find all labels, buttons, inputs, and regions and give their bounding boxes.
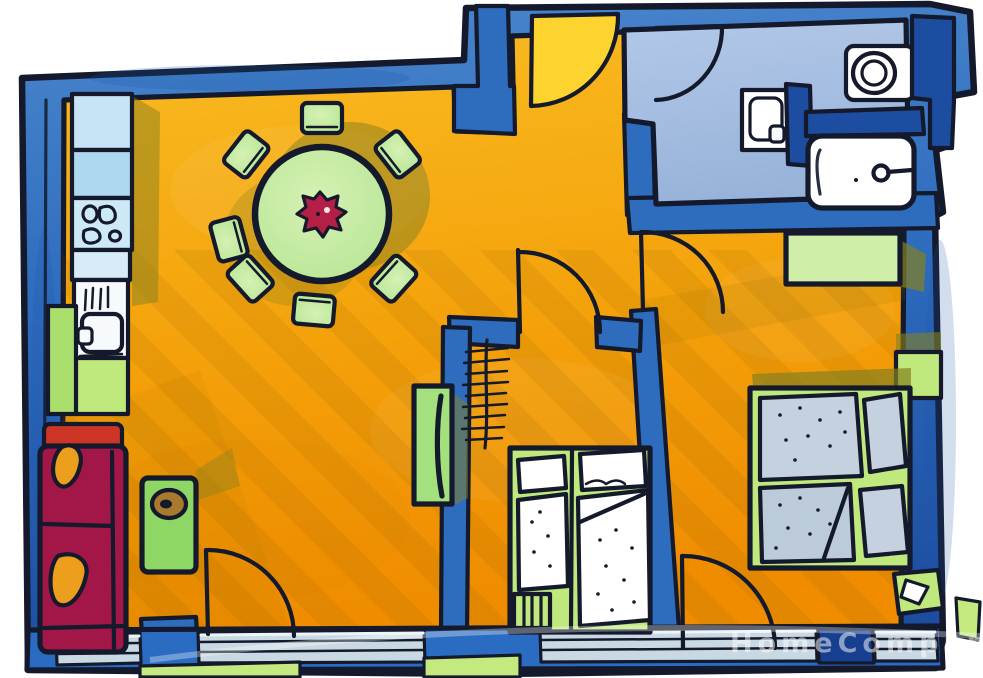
garden-grass	[424, 655, 520, 677]
wall-shade	[924, 240, 956, 600]
beds-divider	[571, 450, 572, 630]
kitchen-counter-green	[74, 358, 128, 414]
pillow	[864, 394, 906, 472]
kitchen-counter-top	[72, 94, 132, 150]
mattress	[760, 484, 854, 562]
blanket	[578, 490, 650, 626]
dining-table-set	[209, 103, 430, 327]
sofa	[40, 424, 126, 652]
bathroom-partition-horizontal	[806, 108, 924, 136]
pillow	[580, 450, 646, 490]
pillow	[860, 486, 908, 556]
bowl-center	[160, 500, 172, 509]
stove	[72, 198, 132, 250]
toilet	[846, 46, 914, 100]
kitchen-counter	[72, 150, 132, 198]
pillow	[518, 456, 566, 492]
flower-center	[316, 212, 320, 216]
counter-shadow	[132, 96, 160, 306]
bathroom	[624, 16, 954, 208]
flower-highlight	[324, 207, 330, 213]
garden-grass	[140, 662, 300, 677]
bed-foot-slats	[514, 594, 550, 628]
fridge	[48, 306, 76, 414]
mattress	[760, 394, 862, 480]
tv-sideboard	[414, 386, 468, 506]
side-table-with-paper	[894, 570, 943, 614]
bathtub	[808, 136, 914, 208]
single-bed-right	[578, 450, 650, 626]
kitchen-sink	[74, 280, 128, 358]
kitchen-counter	[72, 250, 130, 280]
blanket	[518, 494, 568, 590]
dining-chair	[302, 103, 342, 133]
watermark-text: HomeCompan	[730, 628, 983, 659]
kids-room-top-wall-stub	[596, 317, 641, 351]
flower-centerpiece	[297, 192, 346, 237]
double-bed	[750, 368, 911, 568]
dining-chair	[293, 293, 335, 326]
floor-plan-illustration: HomeCompan	[0, 0, 983, 678]
floor-plan-page: HomeCompan	[0, 0, 983, 678]
wall-shade	[90, 65, 410, 91]
